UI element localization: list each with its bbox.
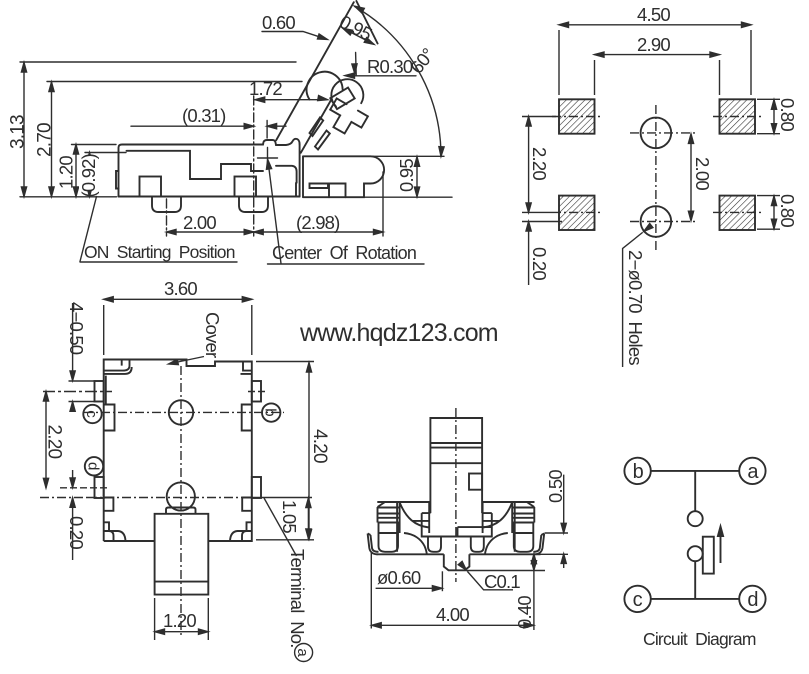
svg-text:4.20: 4.20 (309, 429, 330, 463)
svg-text:0.80: 0.80 (777, 194, 798, 227)
svg-text:1.20: 1.20 (163, 610, 196, 631)
svg-text:0.50: 0.50 (545, 470, 566, 503)
svg-text:(2.98): (2.98) (296, 212, 340, 233)
svg-text:0.20: 0.20 (66, 516, 87, 549)
svg-text:ø0.60: ø0.60 (377, 567, 421, 588)
svg-text:2.20: 2.20 (529, 147, 550, 180)
svg-text:(0.92): (0.92) (78, 153, 99, 197)
svg-text:d: d (84, 462, 101, 470)
svg-text:3.13: 3.13 (8, 115, 29, 149)
svg-text:a: a (747, 461, 759, 483)
svg-text:3.60: 3.60 (164, 278, 197, 299)
svg-text:Center Of Rotation: Center Of Rotation (272, 243, 416, 263)
svg-text:0.95: 0.95 (396, 159, 417, 192)
svg-text:2.00: 2.00 (692, 157, 713, 190)
svg-text:(0.31): (0.31) (182, 105, 226, 126)
svg-text:0.40: 0.40 (514, 596, 535, 629)
svg-text:4−0.50: 4−0.50 (66, 302, 87, 355)
svg-text:2−ø0.70 Holes: 2−ø0.70 Holes (625, 250, 646, 365)
svg-text:Terminal No.: Terminal No. (287, 549, 308, 648)
svg-text:1.72: 1.72 (249, 78, 282, 99)
svg-text:2.20: 2.20 (44, 425, 65, 459)
svg-text:www.hqdz123.com: www.hqdz123.com (299, 319, 498, 347)
svg-text:0.80: 0.80 (777, 98, 798, 131)
svg-text:c: c (633, 589, 643, 611)
svg-text:C0.1: C0.1 (484, 571, 520, 592)
svg-text:ON Starting Position: ON Starting Position (84, 242, 235, 262)
svg-text:1.05: 1.05 (279, 500, 300, 533)
svg-text:Circuit Diagram: Circuit Diagram (643, 629, 756, 649)
svg-text:4.00: 4.00 (436, 604, 469, 625)
svg-text:2.00: 2.00 (183, 212, 216, 233)
svg-text:4.50: 4.50 (637, 4, 670, 25)
svg-text:2.90: 2.90 (637, 34, 670, 55)
svg-text:d: d (747, 589, 757, 611)
svg-text:0.60: 0.60 (262, 12, 295, 33)
svg-text:Cover: Cover (202, 312, 223, 358)
svg-text:R0.30: R0.30 (367, 56, 413, 77)
svg-text:b: b (633, 461, 644, 483)
svg-text:0.20: 0.20 (529, 247, 550, 280)
svg-text:2.70: 2.70 (35, 123, 56, 157)
svg-text:1.20: 1.20 (56, 156, 77, 189)
